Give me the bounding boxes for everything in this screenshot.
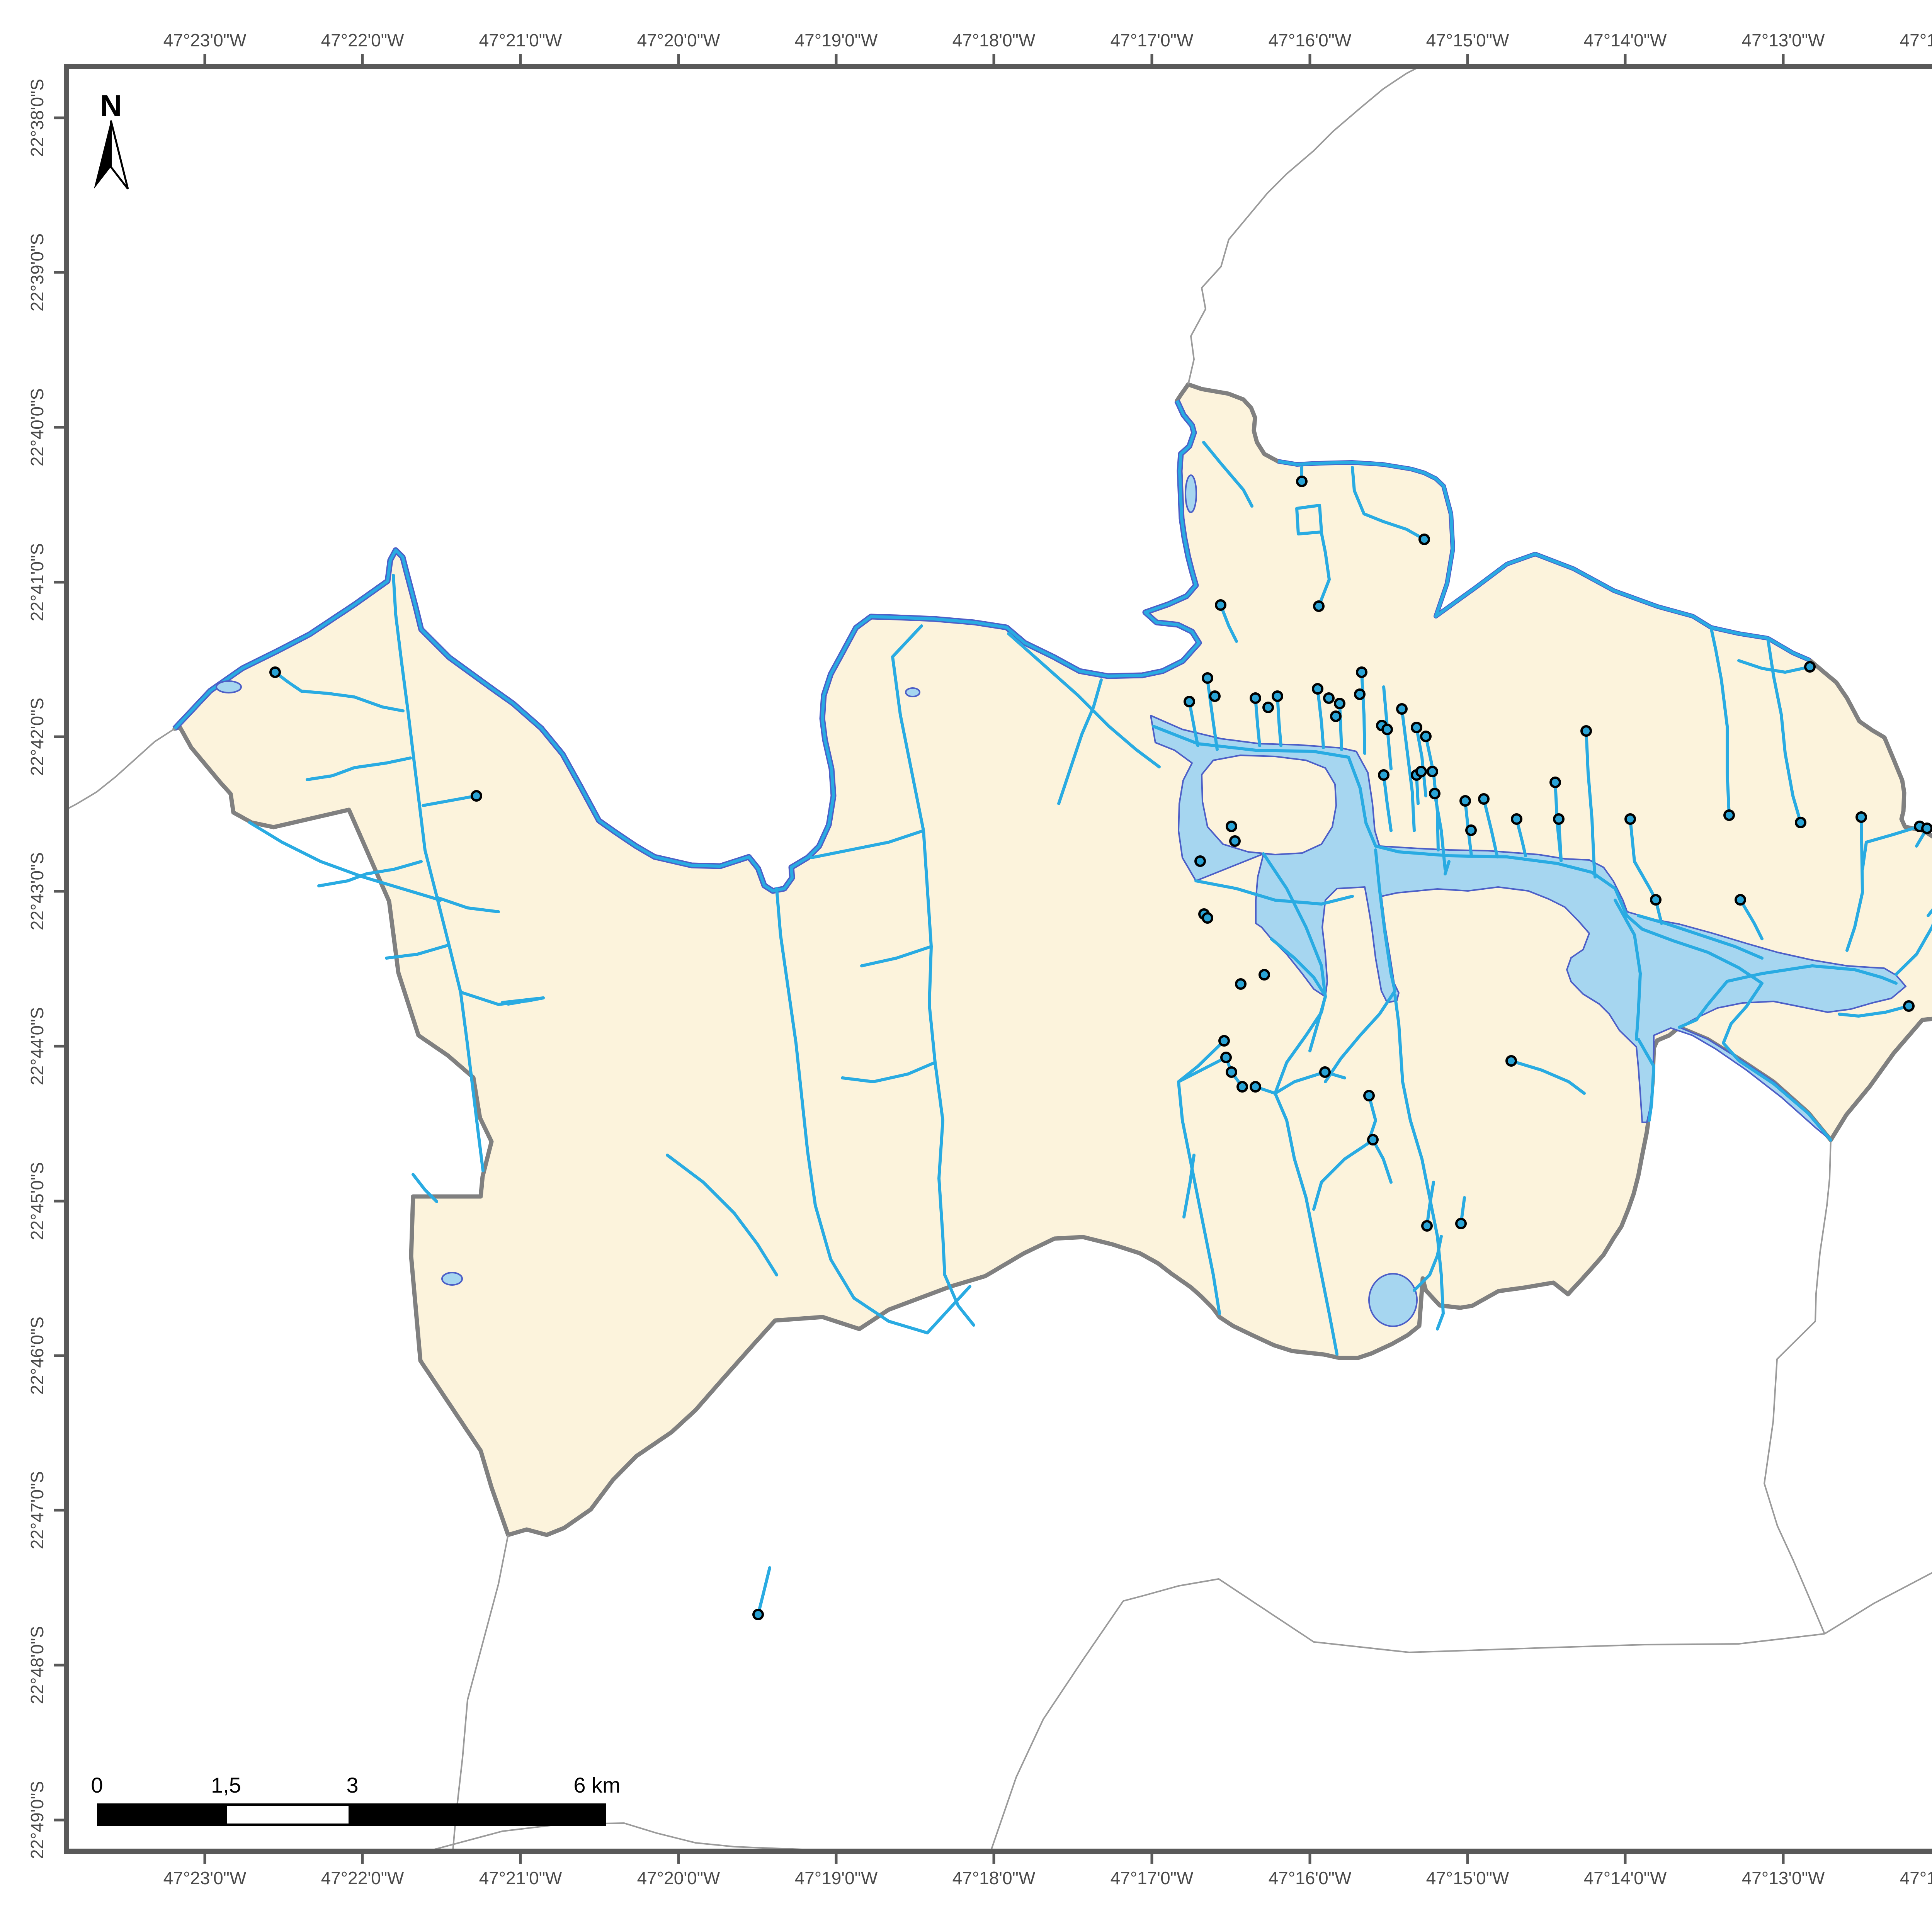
svg-text:47°22'0"W: 47°22'0"W [321, 30, 404, 50]
svg-text:47°17'0"W: 47°17'0"W [1111, 30, 1194, 50]
svg-text:22°47'0"S: 22°47'0"S [27, 1471, 47, 1549]
svg-text:0: 0 [91, 1773, 103, 1797]
svg-text:22°48'0"S: 22°48'0"S [27, 1626, 47, 1704]
svg-text:47°15'0"W: 47°15'0"W [1426, 1868, 1509, 1888]
svg-text:22°40'0"S: 22°40'0"S [27, 388, 47, 466]
svg-text:47°18'0"W: 47°18'0"W [952, 1868, 1036, 1888]
svg-text:47°20'0"W: 47°20'0"W [637, 30, 720, 50]
svg-text:47°16'0"W: 47°16'0"W [1269, 30, 1352, 50]
svg-text:47°12'0"W: 47°12'0"W [1900, 1868, 1932, 1888]
svg-text:22°45'0"S: 22°45'0"S [27, 1162, 47, 1240]
svg-text:47°22'0"W: 47°22'0"W [321, 1868, 404, 1888]
svg-text:47°13'0"W: 47°13'0"W [1742, 1868, 1825, 1888]
svg-text:47°23'0"W: 47°23'0"W [163, 30, 247, 50]
svg-text:47°13'0"W: 47°13'0"W [1742, 30, 1825, 50]
svg-text:47°23'0"W: 47°23'0"W [163, 1868, 247, 1888]
svg-text:47°16'0"W: 47°16'0"W [1269, 1868, 1352, 1888]
svg-text:3: 3 [346, 1773, 358, 1797]
svg-text:47°18'0"W: 47°18'0"W [952, 30, 1036, 50]
svg-text:47°19'0"W: 47°19'0"W [795, 1868, 878, 1888]
svg-text:47°14'0"W: 47°14'0"W [1584, 1868, 1667, 1888]
svg-text:22°39'0"S: 22°39'0"S [27, 233, 47, 311]
svg-text:47°21'0"W: 47°21'0"W [479, 1868, 562, 1888]
svg-text:N: N [100, 88, 122, 122]
svg-text:47°17'0"W: 47°17'0"W [1111, 1868, 1194, 1888]
svg-text:47°21'0"W: 47°21'0"W [479, 30, 562, 50]
svg-text:1,5: 1,5 [211, 1773, 241, 1797]
svg-text:22°46'0"S: 22°46'0"S [27, 1317, 47, 1395]
svg-text:47°15'0"W: 47°15'0"W [1426, 30, 1509, 50]
svg-text:47°14'0"W: 47°14'0"W [1584, 30, 1667, 50]
svg-text:47°12'0"W: 47°12'0"W [1900, 30, 1932, 50]
svg-text:22°38'0"S: 22°38'0"S [27, 79, 47, 157]
svg-text:47°20'0"W: 47°20'0"W [637, 1868, 720, 1888]
svg-text:6 km: 6 km [573, 1773, 620, 1797]
svg-text:22°41'0"S: 22°41'0"S [27, 543, 47, 621]
svg-text:22°44'0"S: 22°44'0"S [27, 1007, 47, 1085]
svg-text:22°49'0"S: 22°49'0"S [27, 1781, 47, 1859]
svg-text:22°43'0"S: 22°43'0"S [27, 852, 47, 930]
svg-text:22°42'0"S: 22°42'0"S [27, 698, 47, 776]
svg-text:47°19'0"W: 47°19'0"W [795, 30, 878, 50]
